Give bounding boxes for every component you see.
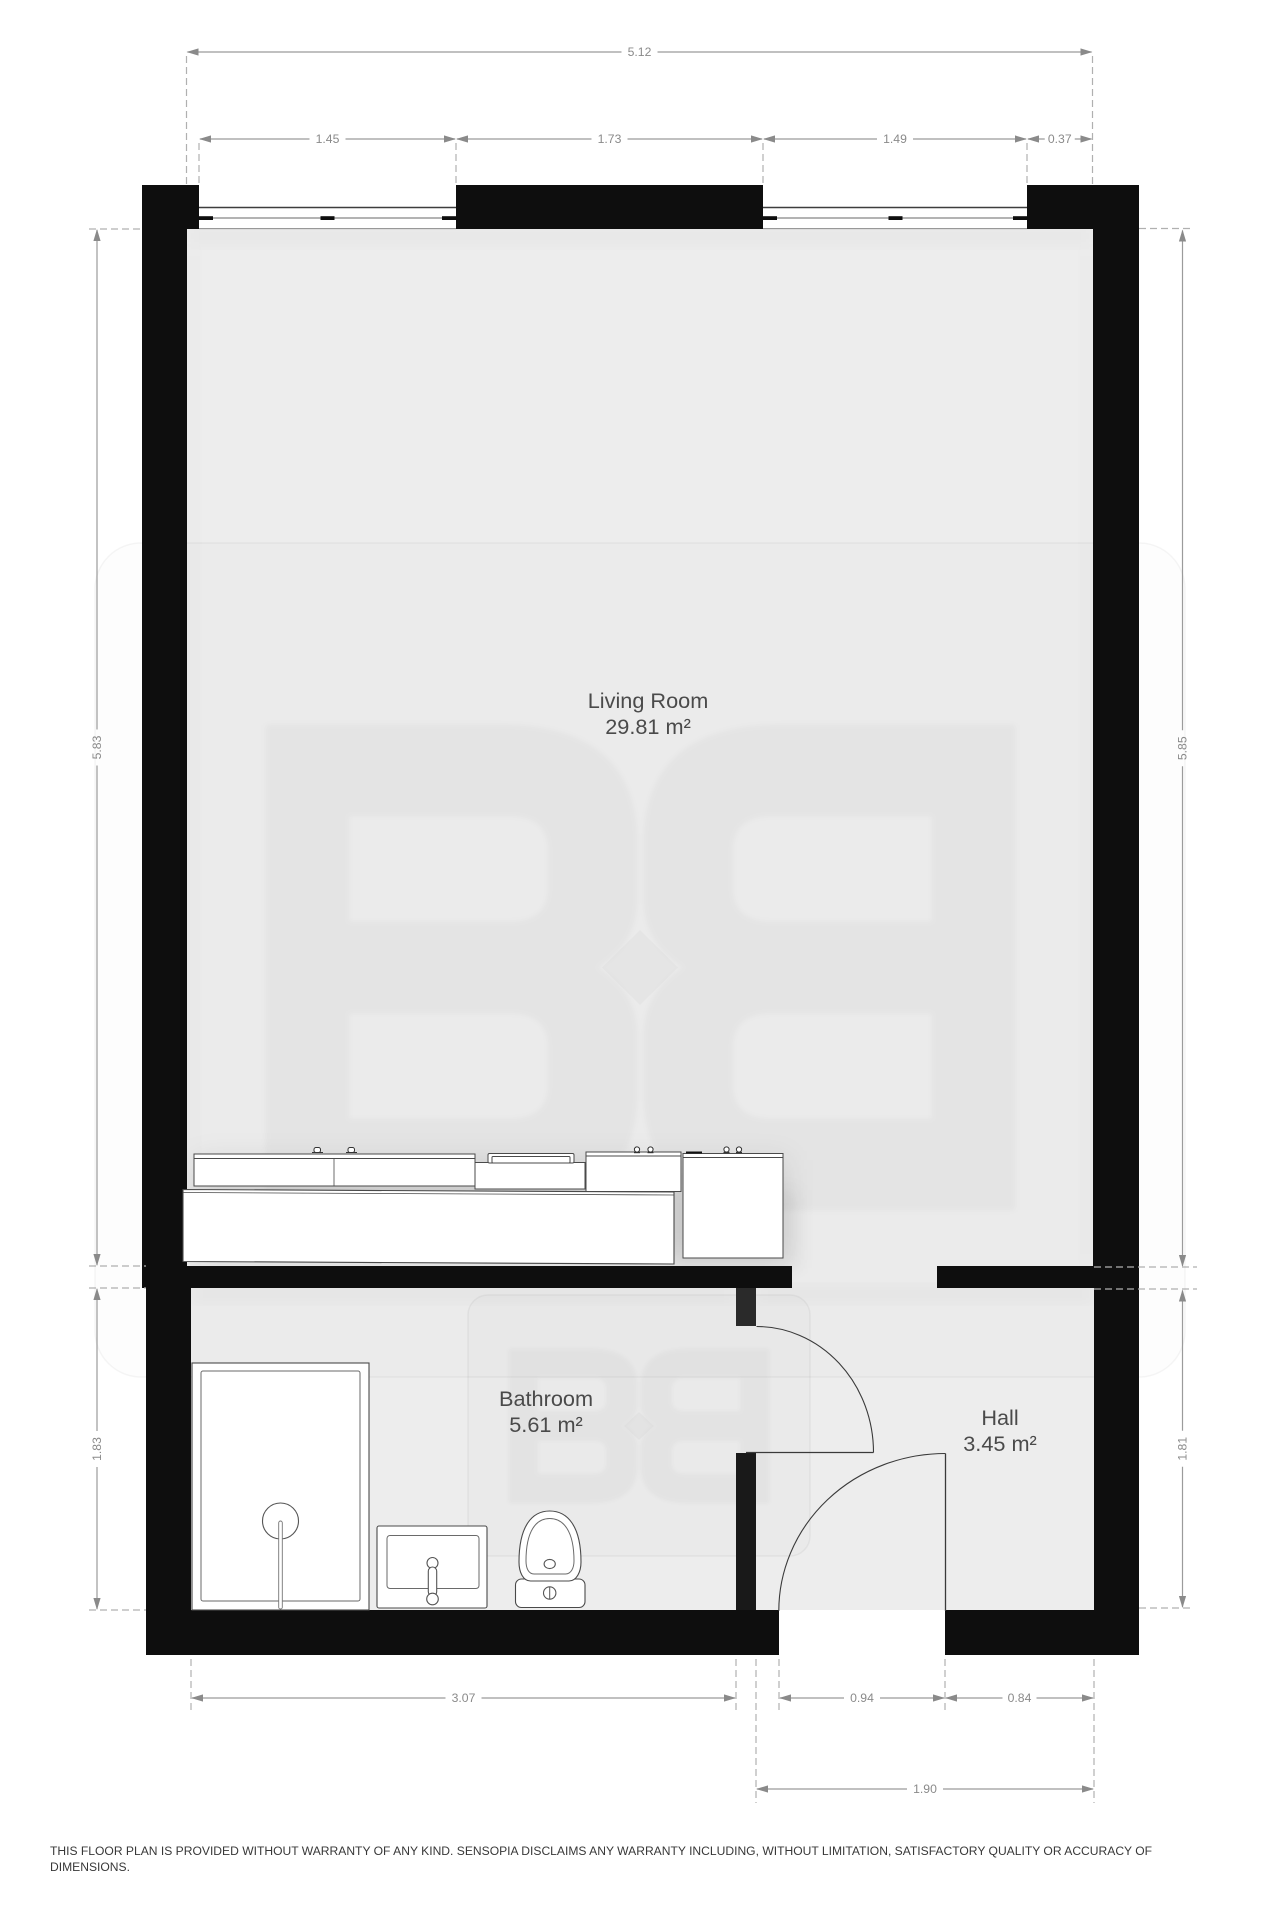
svg-text:1.83: 1.83 <box>90 1437 104 1461</box>
svg-text:5.83: 5.83 <box>90 735 104 759</box>
svg-text:1.49: 1.49 <box>883 132 907 146</box>
svg-text:3.07: 3.07 <box>452 1691 476 1705</box>
svg-text:1.73: 1.73 <box>598 132 622 146</box>
svg-text:0.94: 0.94 <box>850 1691 874 1705</box>
svg-text:5.12: 5.12 <box>628 45 652 59</box>
svg-text:0.37: 0.37 <box>1048 132 1072 146</box>
svg-text:5.85: 5.85 <box>1176 736 1190 760</box>
svg-text:0.84: 0.84 <box>1008 1691 1032 1705</box>
svg-text:1.45: 1.45 <box>316 132 340 146</box>
svg-text:1.90: 1.90 <box>913 1782 937 1796</box>
